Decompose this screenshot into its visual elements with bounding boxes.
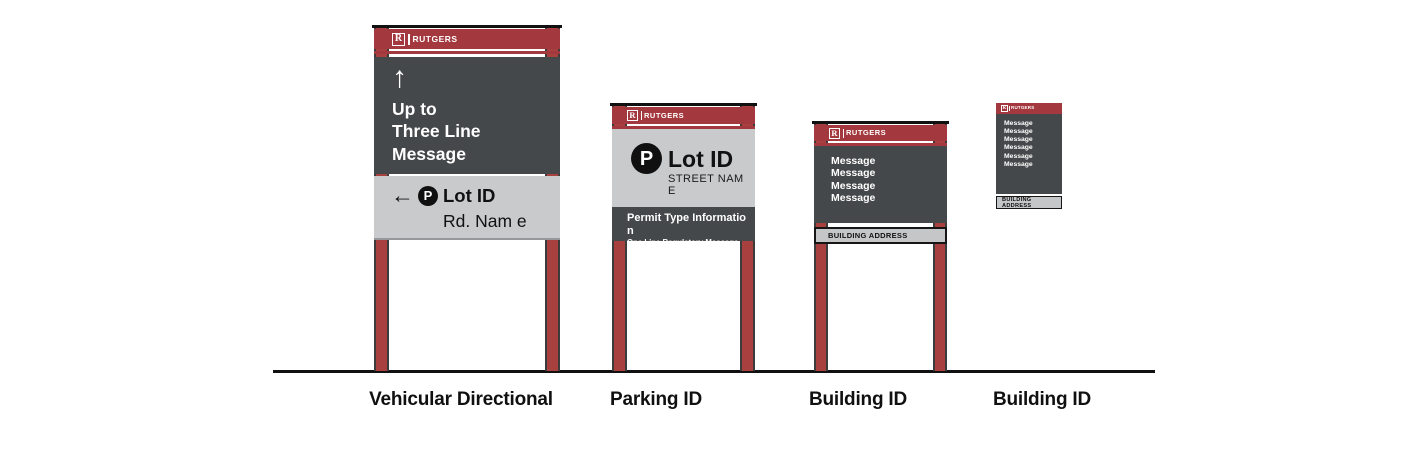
block-r-icon: R (392, 33, 405, 46)
building-message-panel: Message Message Message Message Message … (996, 114, 1062, 194)
rutgers-logo: R RUTGERS (627, 110, 684, 121)
message-line: Message (831, 155, 947, 167)
rutgers-wordmark: RUTGERS (846, 129, 886, 137)
message-line: Message (1004, 144, 1062, 152)
top-cap (372, 25, 562, 28)
up-arrow-icon: ↑ (392, 63, 560, 93)
message-line: Message (1004, 161, 1062, 169)
lot-id-text: Lot ID (668, 146, 733, 173)
header-band: R RUTGERS (612, 107, 755, 124)
message-line: Three Line (392, 120, 560, 142)
message-line: Message (1004, 153, 1062, 161)
rutgers-wordmark: RUTGERS (1011, 106, 1034, 111)
message-line: Message (831, 192, 947, 204)
top-cap (812, 121, 949, 124)
rutgers-wordmark: RUTGERS (413, 35, 458, 44)
permit-panel: Permit Type Informatio n One Line Regula… (612, 207, 755, 241)
logo-divider (1009, 106, 1010, 111)
left-arrow-icon: ← (391, 184, 414, 207)
sign-vehicular-directional: R RUTGERS ↑ Up to Three Line Message ← P… (372, 25, 562, 372)
rutgers-wordmark: RUTGERS (644, 112, 684, 120)
parking-icon: P (418, 186, 438, 206)
logo-divider (641, 111, 642, 120)
sign-label-building-id-large: Building ID (808, 389, 908, 411)
logo-divider (408, 34, 410, 45)
header-band: R RUTGERS (996, 103, 1062, 114)
message-line: Message (392, 143, 560, 165)
header-band: R RUTGERS (814, 125, 947, 141)
message-line: Message (831, 167, 947, 179)
rutgers-logo: R RUTGERS (392, 33, 458, 46)
sign-label-vehicular-directional: Vehicular Directional (366, 389, 556, 411)
building-address-strip: BUILDING ADDRESS (996, 196, 1062, 209)
block-r-icon: R (829, 128, 840, 139)
message-line: Message (1004, 136, 1062, 144)
message-line: Message (831, 180, 947, 192)
logo-divider (843, 129, 844, 138)
top-cap (610, 103, 757, 106)
sign-parking-id: R RUTGERS P Lot ID STREET NAM E Permit T… (610, 103, 757, 372)
block-r-icon: R (1001, 105, 1008, 112)
accent-stripe (374, 51, 560, 54)
signage-family-diagram: R RUTGERS ↑ Up to Three Line Message ← P… (0, 0, 1404, 452)
lot-panel: ← P Lot ID Rd. Nam e (374, 176, 560, 240)
directional-message-panel: ↑ Up to Three Line Message (374, 57, 560, 174)
permit-info-text: Permit Type Informatio n (627, 212, 755, 237)
road-name-text: Rd. Nam e (443, 211, 527, 232)
lot-panel: P Lot ID STREET NAM E (612, 129, 755, 207)
sign-building-id-large: R RUTGERS Message Message Message Messag… (812, 121, 949, 372)
lot-id-text: Lot ID (443, 185, 495, 207)
rutgers-logo: R RUTGERS (829, 128, 886, 139)
sign-building-id-small: R RUTGERS Message Message Message Messag… (996, 103, 1062, 208)
building-address-strip: BUILDING ADDRESS (814, 227, 947, 244)
street-name-text: STREET NAM E (668, 173, 755, 197)
message-line: Message (1004, 128, 1062, 136)
building-message-panel: Message Message Message Message (814, 146, 947, 223)
block-r-icon: R (627, 110, 638, 121)
rutgers-logo: R RUTGERS (1001, 105, 1034, 112)
header-band: R RUTGERS (374, 29, 560, 49)
sign-label-building-id-small: Building ID (992, 389, 1092, 411)
parking-icon: P (631, 143, 662, 174)
sign-label-parking-id: Parking ID (606, 389, 706, 411)
message-line: Message (1004, 120, 1062, 128)
message-line: Up to (392, 98, 560, 120)
regulatory-text: One Line Regulatory Message (627, 238, 755, 247)
